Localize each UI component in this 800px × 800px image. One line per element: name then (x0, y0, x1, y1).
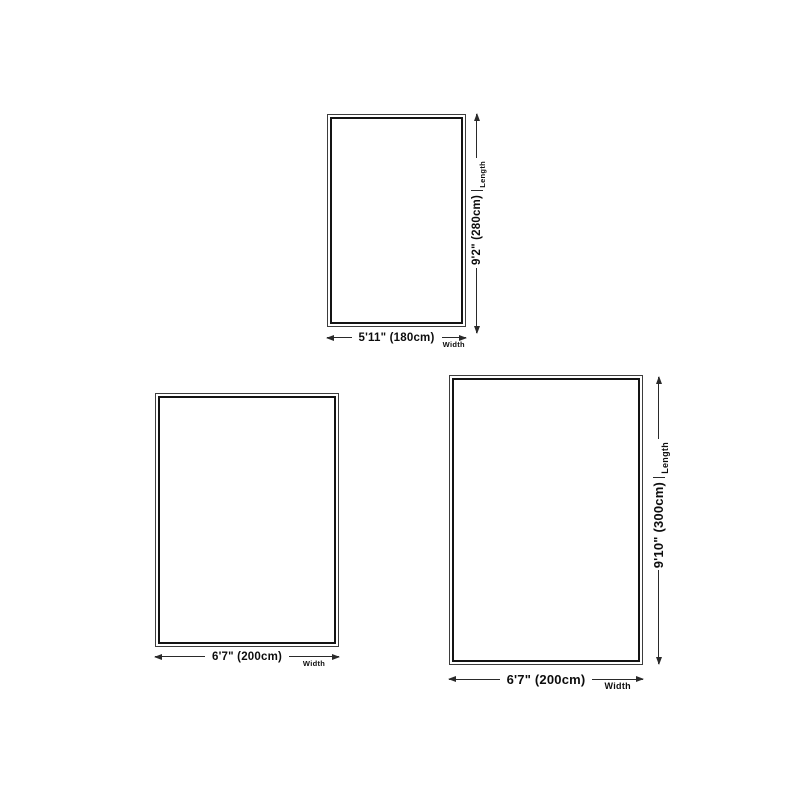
arrow-left-icon (155, 656, 205, 657)
rug-200x300-outline (449, 375, 643, 665)
arrow-down-icon (658, 570, 659, 664)
rug-200cm-width-dimension: 6'7" (200cm) Width (155, 649, 339, 664)
rug-200cm-outline (155, 393, 339, 647)
arrow-left-icon (327, 337, 352, 338)
rug-180x280-width-dimension: 5'11" (180cm) Width (327, 330, 466, 345)
arrow-right-icon (289, 656, 339, 657)
width-value: 6'7" (200cm) (212, 651, 282, 663)
length-value: 9'10" (300cm) (651, 482, 666, 568)
arrow-up-icon (658, 377, 659, 439)
dimension-line-end: Width (289, 649, 339, 664)
caption-tick (471, 190, 483, 191)
dimension-line-end: Width (592, 671, 643, 687)
arrow-up-icon (476, 114, 477, 158)
arrow-left-icon (449, 679, 500, 680)
rug-size-diagram: 5'11" (180cm) Width Length 9'2" (280cm) … (0, 0, 800, 800)
rug-200x300-inner-border (452, 378, 640, 662)
width-caption: Width (443, 340, 465, 349)
rug-180x280-length-dimension: Length 9'2" (280cm) (469, 114, 484, 333)
rug-200cm-inner-border (158, 396, 336, 644)
rug-200x300-length-dimension: Length 9'10" (300cm) (651, 377, 666, 664)
rug-200x300-width-dimension: 6'7" (200cm) Width (449, 671, 643, 687)
length-value: 9'2" (280cm) (471, 195, 483, 265)
arrow-down-icon (476, 268, 477, 334)
arrow-right-icon (442, 337, 467, 338)
width-caption: Width (605, 681, 631, 691)
width-caption: Width (303, 659, 325, 668)
arrow-right-icon (592, 679, 643, 680)
length-caption: Length (660, 442, 670, 474)
width-value: 5'11" (180cm) (359, 332, 435, 344)
caption-tick (653, 477, 665, 478)
width-value: 6'7" (200cm) (507, 672, 586, 687)
rug-180x280-inner-border (330, 117, 463, 324)
length-caption: Length (478, 161, 487, 188)
rug-180x280-outline (327, 114, 466, 327)
dimension-line-end: Width (442, 330, 467, 345)
